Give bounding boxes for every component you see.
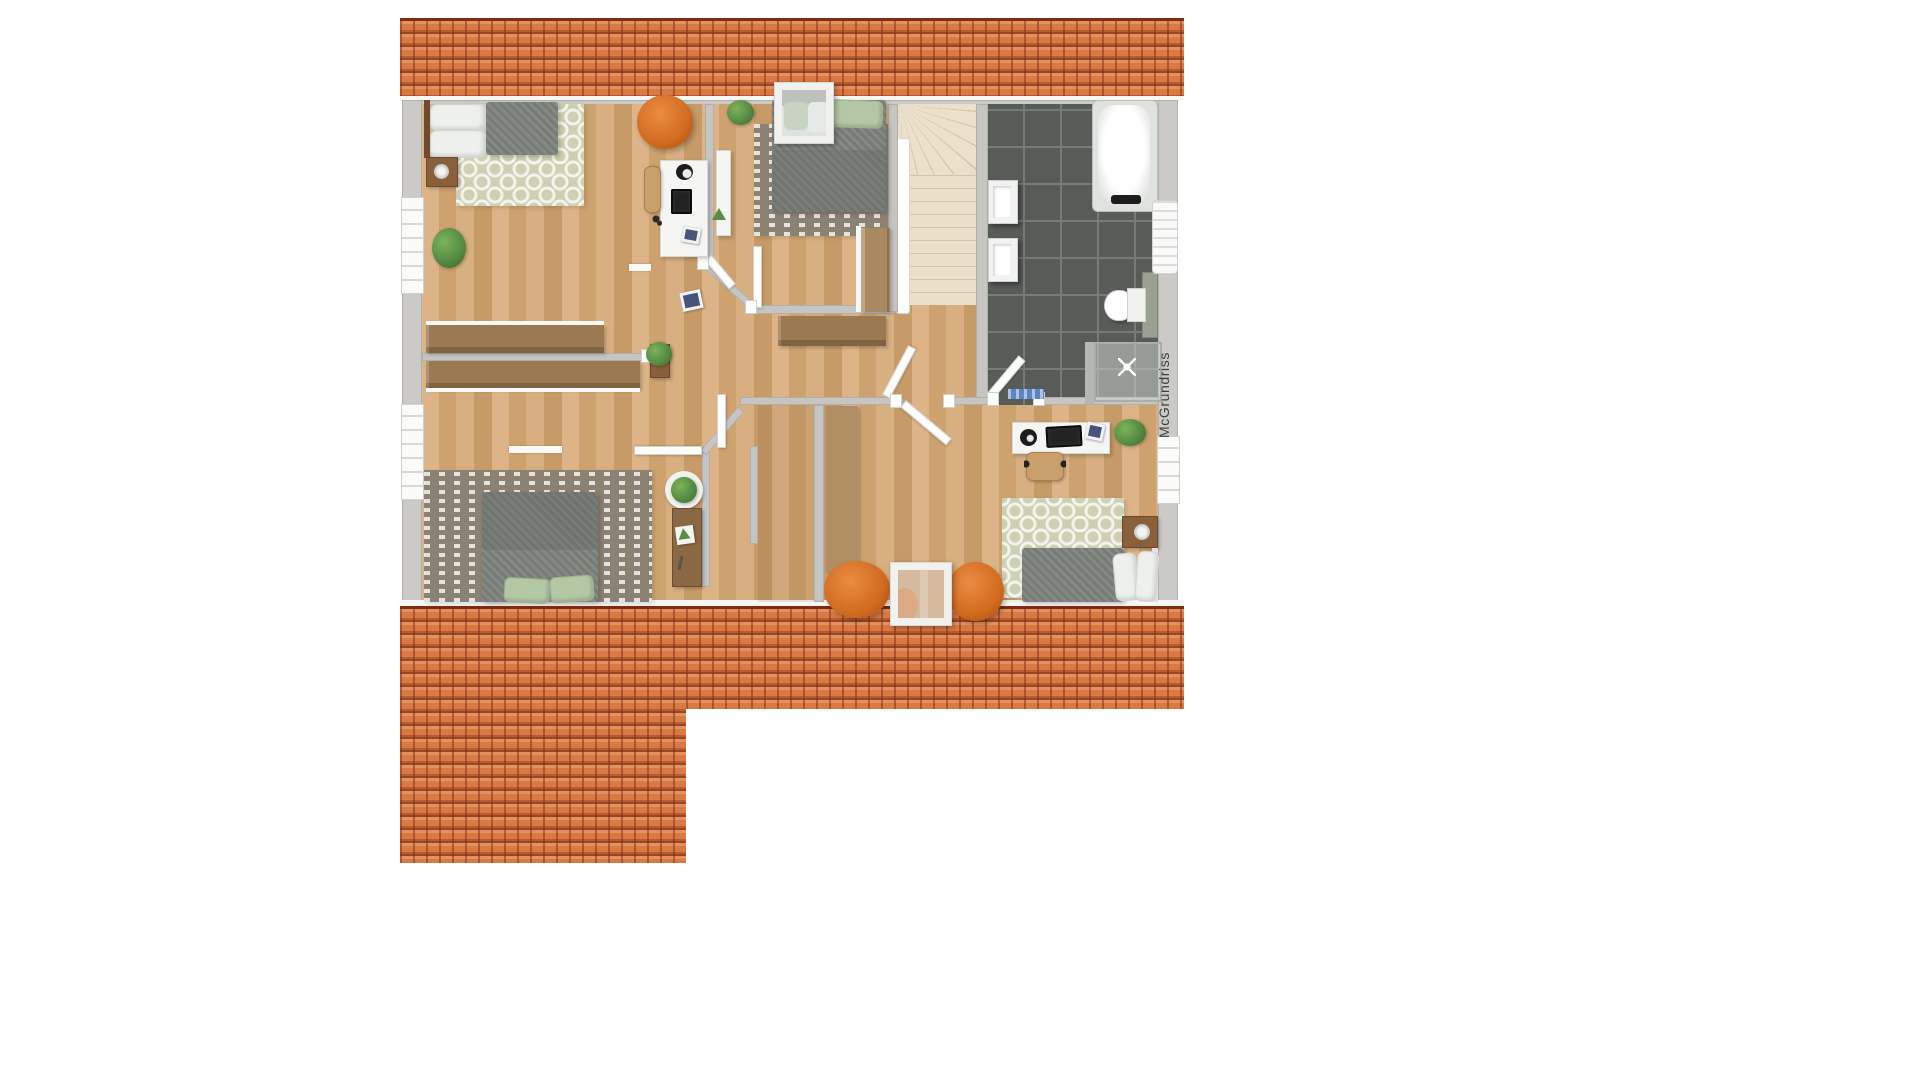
potted-plant (1114, 419, 1146, 446)
window-left-2 (401, 404, 424, 500)
bed-blanket (772, 150, 886, 212)
console-desk (672, 508, 702, 587)
potted-plant (432, 228, 466, 268)
wardrobe-hallway (826, 406, 858, 572)
wall-bathroom-left (976, 104, 988, 405)
bed-top-left (486, 102, 558, 155)
bathtub-basin (1098, 105, 1150, 203)
picture-frame (1084, 421, 1105, 441)
wall-hall-south-b (952, 397, 988, 405)
pouf-orange-top (637, 95, 693, 149)
bed-pillow-green (503, 577, 550, 604)
wardrobe-bedroom-top-middle (861, 228, 890, 312)
floor-plan: McGrundriss (0, 0, 1920, 1080)
toy-badge (675, 525, 695, 545)
door-bedroomD (717, 394, 726, 448)
door-post (890, 394, 902, 408)
wall-hallway-vertical (814, 405, 824, 602)
stair-handrail (896, 138, 910, 314)
bath-mat (1008, 389, 1044, 399)
shower-side-panel (1085, 342, 1094, 404)
shower (1094, 342, 1162, 402)
bed-pillow (430, 104, 486, 131)
bed-pillow-green (829, 99, 884, 129)
washbasin-1 (988, 180, 1018, 224)
potted-plant-large (671, 477, 697, 503)
window-left-1 (401, 197, 424, 294)
door-bedroomD-open-leaf (634, 446, 702, 455)
picture-frame (681, 226, 702, 245)
roof-strip-bottom-left (400, 606, 686, 863)
bathtub (1092, 100, 1158, 212)
sideboard-bottom-edge (426, 388, 640, 392)
desk-monitor (671, 189, 692, 214)
table-lamp (1134, 524, 1150, 540)
threshold-marker (629, 264, 651, 271)
chair-armrests (1024, 458, 1066, 470)
sideboard-hall (778, 316, 886, 346)
window-right (1157, 436, 1180, 504)
hallway-shadow (758, 405, 816, 602)
desk-monitor (1045, 425, 1082, 448)
watermark-label: McGrundriss (1156, 338, 1178, 438)
headphones (676, 164, 693, 180)
knee-wall-marker-1 (509, 446, 562, 453)
skylight-window-bottom (890, 562, 952, 626)
door-post (987, 392, 999, 406)
table-lamp (434, 164, 449, 179)
desk-chair (644, 166, 661, 213)
sideboard-bedroomD-side (426, 361, 640, 389)
shower-head-icon (1118, 358, 1136, 376)
bed-pillow (430, 130, 486, 158)
door-post (697, 256, 709, 270)
outer-wall-left (402, 100, 422, 602)
washbasin-2 (988, 238, 1018, 282)
wall-bedroomD-top (422, 353, 650, 361)
planter-plant (646, 342, 672, 366)
door-post (943, 394, 955, 408)
bed-pillow-green (549, 574, 595, 603)
skylight-glass (782, 90, 826, 136)
towel-radiator (1152, 200, 1178, 274)
bathtub-faucet (1111, 195, 1141, 204)
door-post (745, 300, 757, 314)
wall-hall-south-a (740, 397, 903, 405)
wall-shelf (716, 150, 731, 236)
bed-blanket (482, 492, 598, 550)
potted-plant-small (727, 100, 754, 125)
sideboard-bedroomA-side (426, 325, 604, 353)
bed-bottom-right (1022, 548, 1124, 602)
door-bedroomB-south (753, 246, 762, 308)
pouf-orange-bottom-right (947, 562, 1004, 621)
chair-base (650, 212, 662, 226)
wall-bedroomD-right-b (750, 446, 758, 544)
wall-bedroomD-right-a (702, 446, 710, 587)
skylight-window-top (774, 82, 834, 144)
skylight-glass (898, 570, 944, 618)
toilet-cistern (1127, 288, 1146, 322)
mousepad (1020, 429, 1037, 446)
pouf-orange-bottom-left (824, 561, 890, 618)
toy-triangle (712, 208, 726, 220)
bed-pillow (1134, 550, 1160, 602)
